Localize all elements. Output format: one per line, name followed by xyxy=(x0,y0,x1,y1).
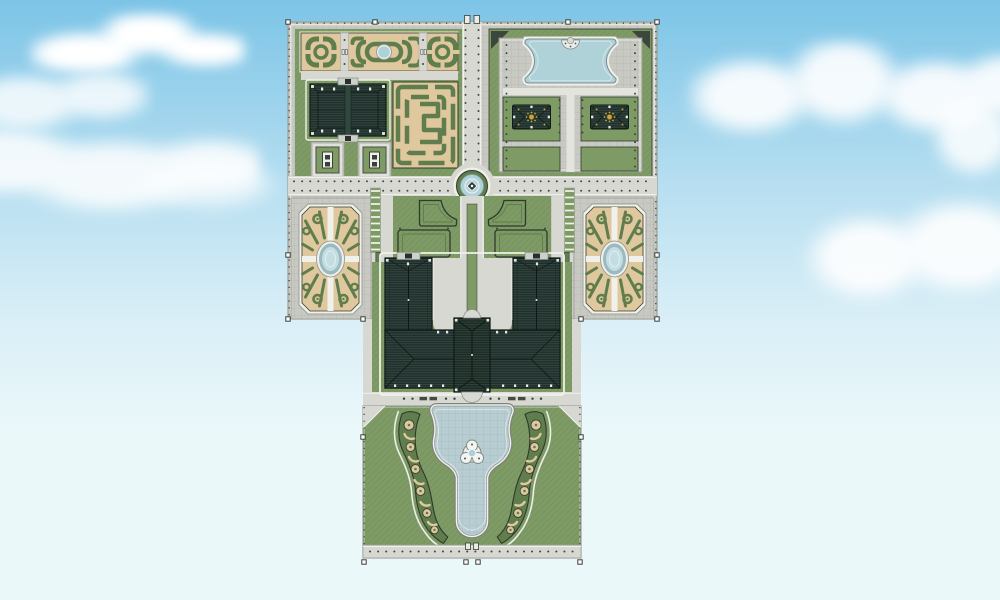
east-bosquet-oval-pool xyxy=(574,198,654,319)
palace-center-pavilion xyxy=(454,310,490,403)
west-bosquet-oval-pool xyxy=(291,198,371,319)
garden-pavilion-gilded xyxy=(513,105,551,129)
south-garden-block xyxy=(363,400,581,558)
north-parterre-beds xyxy=(300,32,460,72)
north-gate-post xyxy=(474,16,480,24)
northeast-quarter xyxy=(489,29,652,180)
north-avenue xyxy=(462,16,482,179)
garden-pavilion-gilded xyxy=(591,105,629,129)
northwest-quarter xyxy=(295,29,462,179)
south-walk xyxy=(363,543,581,558)
great-basin xyxy=(524,37,617,85)
north-gate-post xyxy=(465,16,471,24)
estate-plan-canvas[interactable] xyxy=(0,0,1000,600)
hedge-maze-parterre xyxy=(393,82,458,168)
chateau-outbuilding-roof xyxy=(306,78,390,142)
